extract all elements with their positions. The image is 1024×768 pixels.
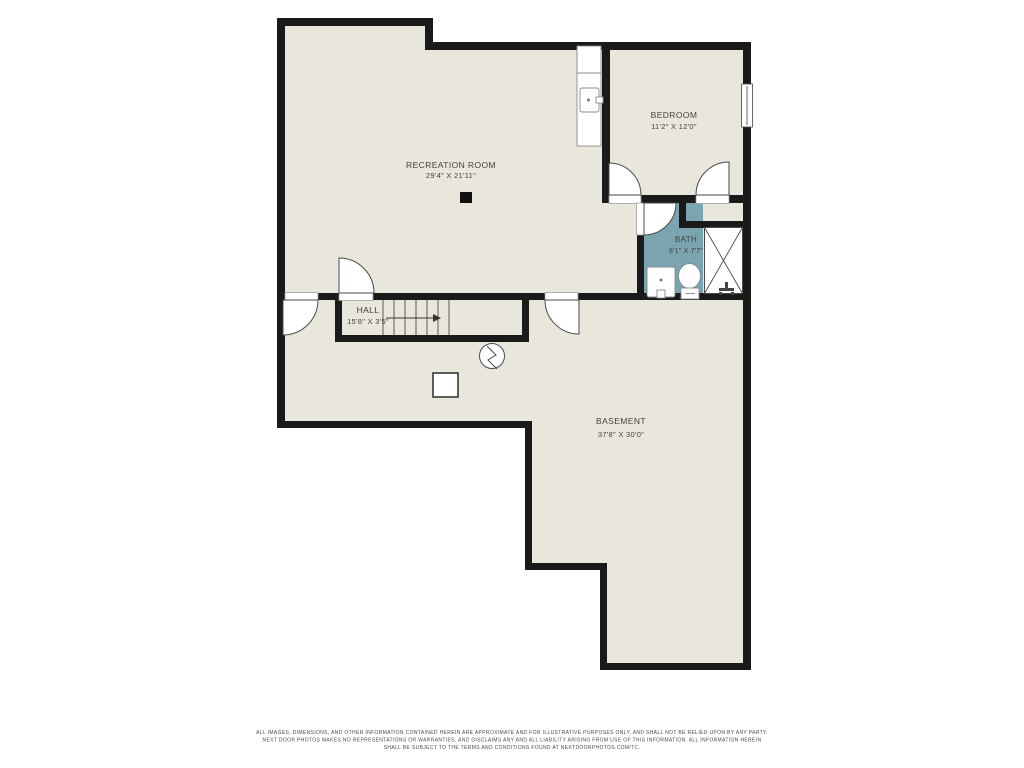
counter-with-sink bbox=[577, 46, 603, 146]
hall-label: HALL bbox=[357, 305, 380, 315]
wall-closet-bottom bbox=[679, 221, 751, 228]
shower bbox=[705, 228, 743, 296]
shower-valve-foot-right bbox=[731, 292, 734, 295]
basement-floor-mid bbox=[529, 421, 747, 567]
bedroom-door2-opening bbox=[696, 195, 729, 204]
bedroom-door1-opening bbox=[609, 195, 641, 204]
shower-valve-stem-icon bbox=[725, 282, 728, 289]
bath-fixtures bbox=[647, 264, 701, 300]
wall-basement-step2 bbox=[600, 563, 607, 670]
bath-label: BATH bbox=[675, 235, 697, 244]
bedroom-label: BEDROOM bbox=[651, 110, 698, 120]
window bbox=[742, 84, 753, 127]
wall-basement-bottom-left bbox=[277, 421, 532, 428]
wall-basement-step1 bbox=[525, 421, 532, 570]
bedroom-dims: 11'2" X 12'0" bbox=[651, 122, 697, 131]
basement-door2-opening bbox=[545, 293, 578, 301]
sink-drain bbox=[587, 99, 590, 102]
disclaimer: ALL IMAGES, DIMENSIONS, AND OTHER INFORM… bbox=[256, 730, 768, 751]
hall-dims: 15'8" X 3'5" bbox=[347, 317, 389, 326]
hall-door-opening bbox=[339, 293, 373, 301]
disclaimer-line2: NEXT DOOR PHOTOS MAKES NO REPRESENTATION… bbox=[263, 738, 762, 744]
sink-faucet-icon bbox=[596, 97, 603, 103]
shower-valve-bar-icon bbox=[719, 288, 734, 291]
recreation-room-label: RECREATION ROOM bbox=[406, 160, 496, 170]
disclaimer-line3: SHALL BE SUBJECT TO THE TERMS AND CONDIT… bbox=[384, 745, 641, 751]
support-post-black-square bbox=[460, 192, 472, 203]
basement-door1-opening bbox=[285, 293, 318, 301]
floorplan-drawing: RECREATION ROOM 29'4" X 21'11" BEDROOM 1… bbox=[0, 0, 1024, 768]
wall-hall-bottom bbox=[335, 335, 529, 342]
floorplan-page: RECREATION ROOM 29'4" X 21'11" BEDROOM 1… bbox=[0, 0, 1024, 768]
bath-dims: 8'1" X 7'7" bbox=[669, 248, 703, 255]
basement-floor-lower bbox=[604, 565, 747, 667]
bath-sink-faucet-icon bbox=[657, 290, 665, 298]
support-column-square bbox=[433, 373, 458, 397]
wall-top-left bbox=[277, 18, 433, 26]
disclaimer-line1: ALL IMAGES, DIMENSIONS, AND OTHER INFORM… bbox=[256, 730, 768, 736]
basement-floor-upper bbox=[281, 296, 747, 425]
recreation-room-dims: 29'4" X 21'11" bbox=[426, 171, 476, 180]
shower-valve-foot-left bbox=[719, 292, 722, 295]
bath-door-opening bbox=[637, 203, 645, 235]
wall-left bbox=[277, 18, 285, 428]
wall-basement-bottom bbox=[600, 663, 751, 670]
sump-pump-icon bbox=[480, 344, 505, 369]
bath-sink-drain bbox=[660, 279, 663, 282]
basement-dims: 37'8" X 30'0" bbox=[598, 430, 644, 439]
wall-hall-right bbox=[522, 293, 529, 342]
wall-basement-mid bbox=[525, 563, 607, 570]
basement-label: BASEMENT bbox=[596, 416, 646, 426]
wall-right bbox=[743, 42, 751, 670]
toilet-bowl bbox=[679, 264, 701, 289]
